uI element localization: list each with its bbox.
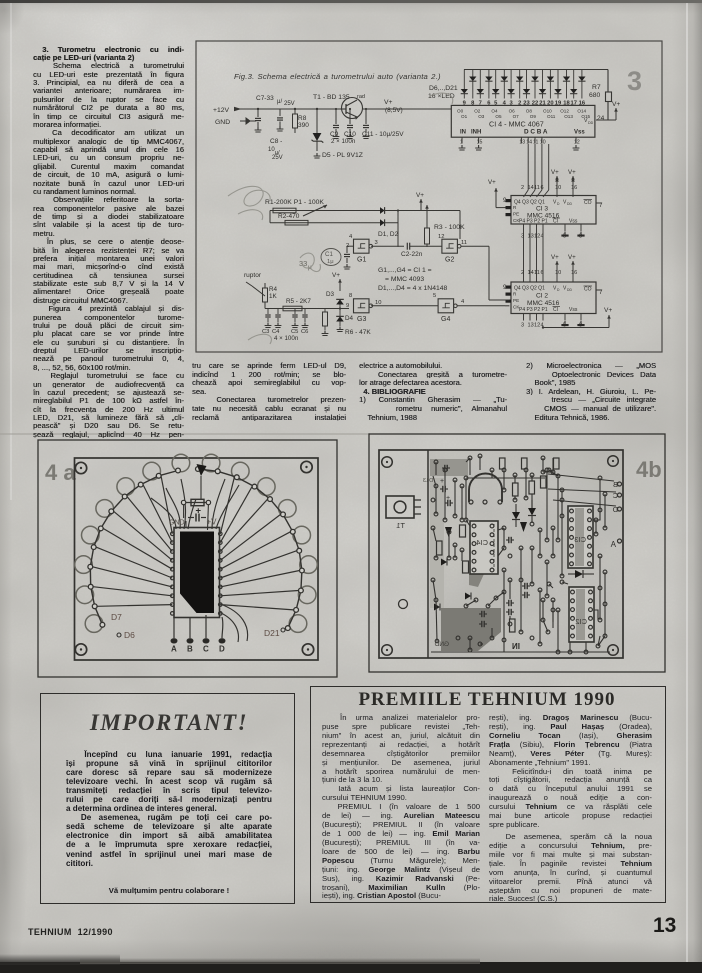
svg-text:D7: D7 <box>111 612 122 622</box>
svg-text:B: B <box>187 645 193 654</box>
svg-text:4b: 4b <box>636 457 662 482</box>
svg-text:4 a: 4 a <box>45 460 76 485</box>
svg-text:T1: T1 <box>396 521 405 530</box>
svg-text:+V: +V <box>207 518 218 527</box>
svg-text:C: C <box>203 645 209 654</box>
svg-text:D13: D13 <box>423 478 433 484</box>
svg-text:CI4: CI4 <box>476 538 488 547</box>
svg-text:CI3: CI3 <box>574 535 586 544</box>
svg-text:GND: GND <box>169 520 185 527</box>
svg-text:+: + <box>446 495 450 502</box>
svg-text:GND: GND <box>434 641 449 648</box>
svg-text:D21: D21 <box>264 628 280 638</box>
svg-text:A: A <box>610 540 616 549</box>
svg-text:IN: IN <box>512 642 520 651</box>
svg-text:CI2: CI2 <box>575 617 587 626</box>
svg-text:+: + <box>440 478 444 485</box>
svg-text:D: D <box>219 645 225 654</box>
svg-text:D6: D6 <box>124 630 135 640</box>
svg-text:A: A <box>171 645 177 654</box>
